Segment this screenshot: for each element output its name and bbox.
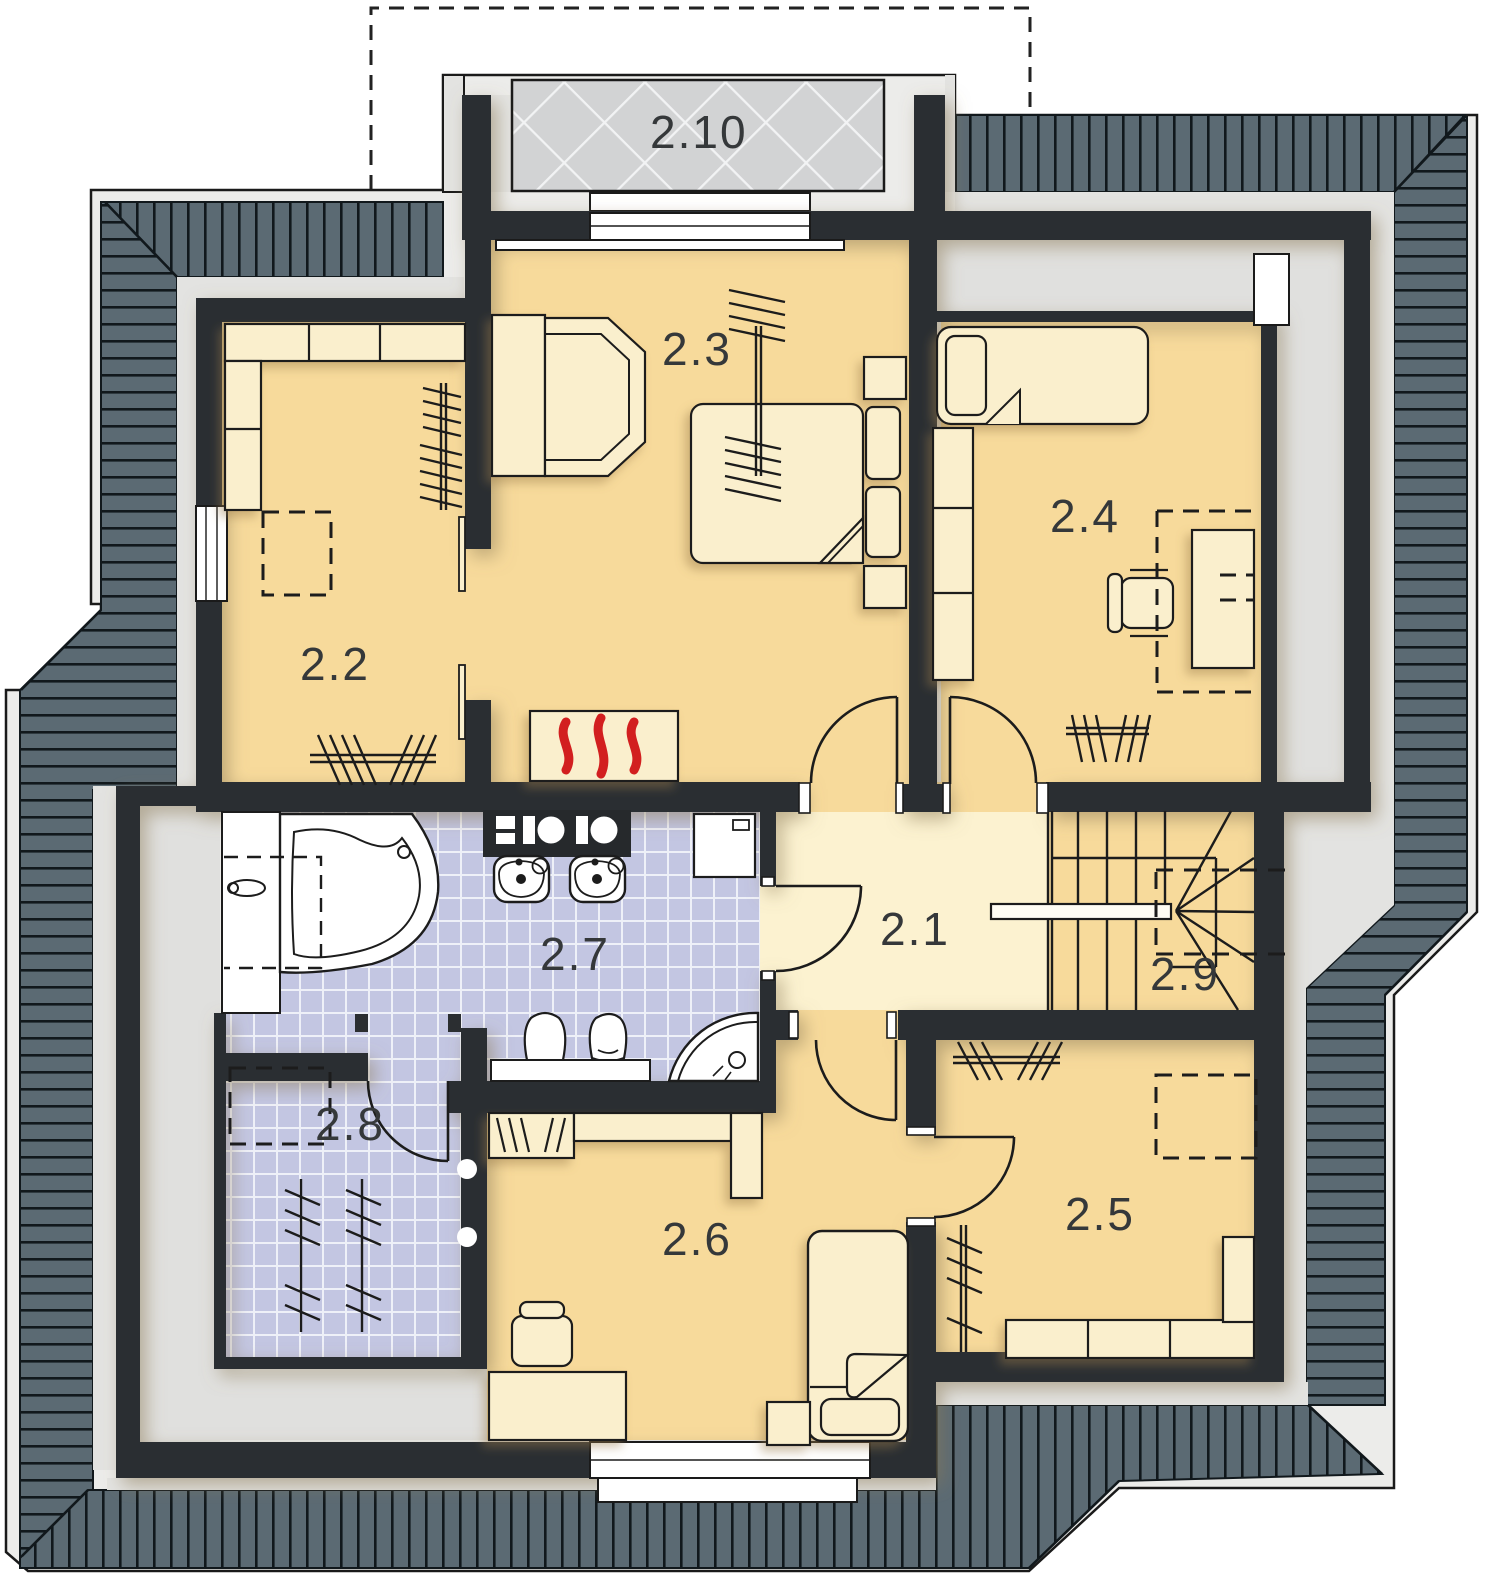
svg-text:2.9: 2.9 [1150,948,1220,1000]
svg-text:2.1: 2.1 [880,903,950,955]
svg-text:2.6: 2.6 [662,1213,732,1265]
svg-text:2.5: 2.5 [1065,1188,1135,1240]
svg-text:2.3: 2.3 [662,323,732,375]
svg-text:2.10: 2.10 [650,106,748,158]
svg-text:2.4: 2.4 [1050,490,1120,542]
svg-text:2.2: 2.2 [300,638,370,690]
svg-text:2.8: 2.8 [315,1098,385,1150]
svg-text:2.7: 2.7 [540,928,610,980]
